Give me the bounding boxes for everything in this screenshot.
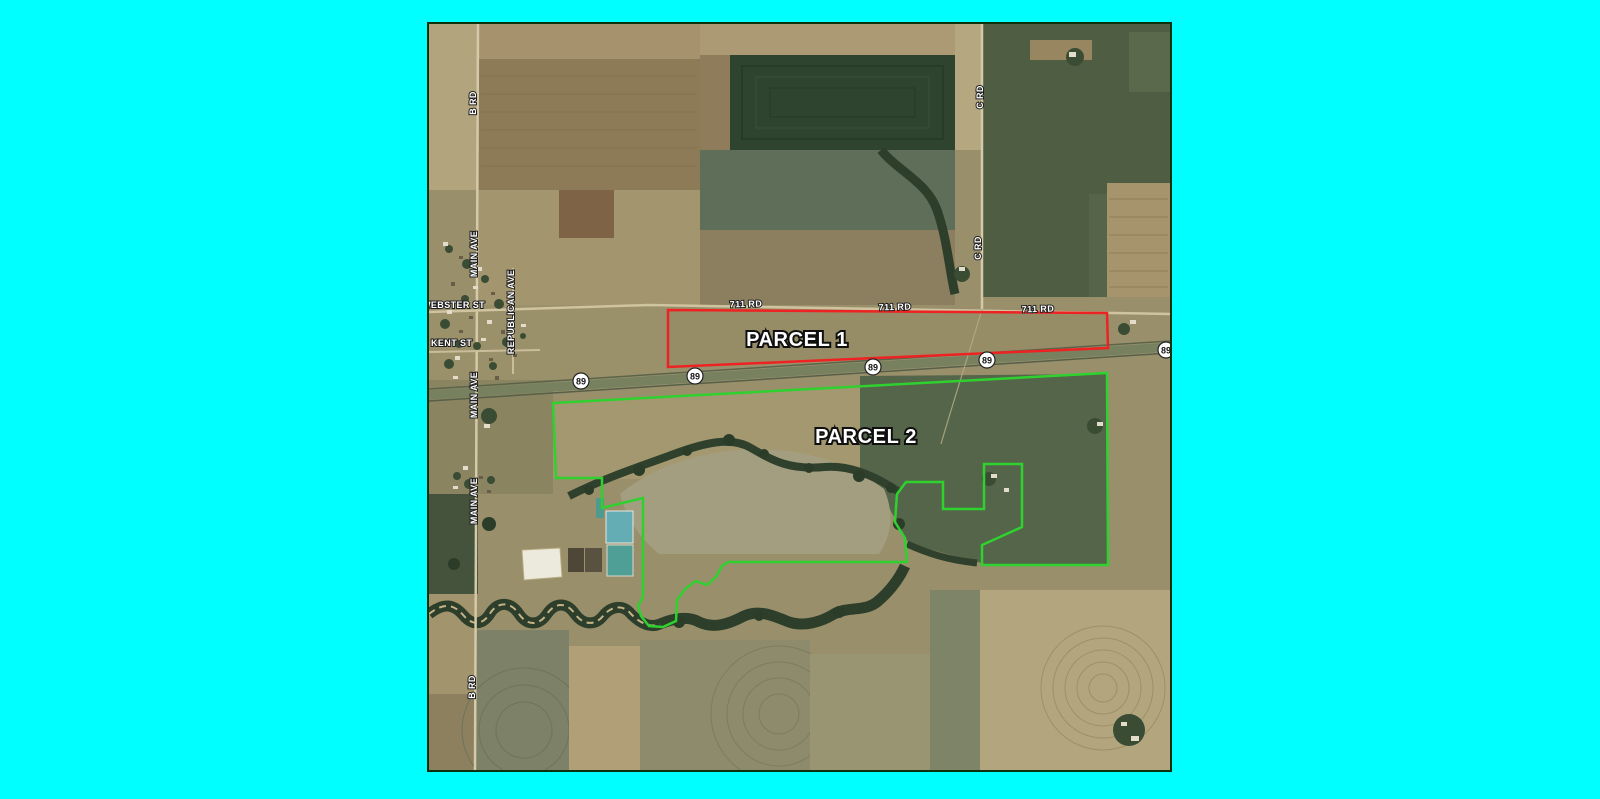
shield-number: 89 <box>982 356 992 366</box>
shield-number: 89 <box>1161 346 1170 356</box>
teal-lagoon-north <box>606 511 633 543</box>
parcel-2-label: PARCEL 2 <box>815 426 917 448</box>
road-label-b-rd-south: B RD <box>467 675 477 699</box>
road-label-main-ave-south: MAIN AVE <box>469 478 479 524</box>
page-background: { "page": { "background_color": "#00ffff… <box>0 0 1600 799</box>
road-label-main-ave-mid: MAIN AVE <box>469 372 479 418</box>
highway-89-shield: 89 <box>573 373 589 389</box>
road-label-webster-st: WEBSTER ST <box>429 300 485 310</box>
shield-number: 89 <box>868 363 878 373</box>
highway-89-shield: 89 <box>979 352 995 368</box>
field-patches <box>429 24 1170 770</box>
road-label-republican-ave: REPUBLICAN AVE <box>506 270 516 355</box>
road-label-711-rd-west: 711 RD <box>730 299 763 310</box>
teal-lagoon-south <box>607 545 633 576</box>
aerial-parcel-map: 89 89 89 89 89 B RD MAIN AVE WEBSTER ST … <box>427 22 1172 772</box>
road-label-main-ave-north: MAIN AVE <box>469 231 479 277</box>
road-label-711-rd-mid: 711 RD <box>879 302 912 313</box>
road-label-711-rd-east: 711 RD <box>1022 304 1055 315</box>
road-label-c-rd-north: C RD <box>975 85 985 109</box>
highway-89-shield: 89 <box>865 359 881 375</box>
road-label-kent-st: KENT ST <box>431 338 472 348</box>
road-label-b-rd-north: B RD <box>468 91 478 115</box>
parcel-1-label: PARCEL 1 <box>746 329 848 351</box>
highway-89-shield-clipped: 89 <box>1158 342 1170 358</box>
shield-number: 89 <box>690 372 700 382</box>
white-lagoon <box>522 548 562 580</box>
shield-number: 89 <box>576 377 586 387</box>
road-label-c-rd-south: C RD <box>973 236 983 260</box>
highway-89-shield: 89 <box>687 368 703 384</box>
map-image: 89 89 89 89 89 B RD MAIN AVE WEBSTER ST … <box>429 24 1170 770</box>
